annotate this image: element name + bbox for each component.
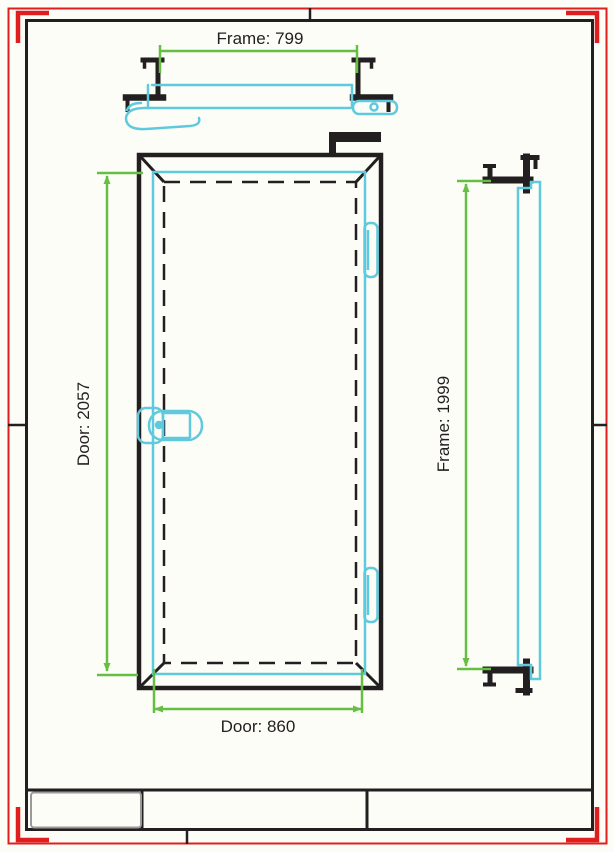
- side-section-frame-profiles: [485, 157, 537, 692]
- corner-mark-bottom-left: [18, 807, 49, 840]
- door-height-dimension-label: Door: 2057: [74, 382, 93, 466]
- side-section-dimension: [457, 181, 491, 669]
- front-elevation-view: Door: 2057 Door: 860: [74, 132, 381, 736]
- side-section-view: Frame: 1999: [434, 157, 540, 692]
- hinge-bottom: [365, 568, 378, 622]
- door-handle: [138, 408, 202, 443]
- elevation-opening-dashed-rect: [164, 182, 356, 663]
- elevation-frame-outer-rect: [139, 155, 381, 688]
- hinge-top: [365, 223, 378, 277]
- handle-spindle-dot: [156, 422, 162, 428]
- frame-height-dimension-label: Frame: 1999: [434, 376, 453, 472]
- top-section-leaf-edge-scoop: [126, 108, 199, 129]
- elevation-wall-flag-symbol: [329, 132, 381, 156]
- drawing-sheet: Frame: 799: [0, 0, 614, 852]
- side-section-sill-profile: [485, 662, 530, 692]
- corner-marks: [18, 13, 597, 840]
- top-section-view: Frame: 799: [126, 29, 397, 129]
- side-section-door-leaf: [518, 182, 540, 679]
- top-section-right-jamb-profile: [353, 60, 390, 110]
- door-drawing-canvas: Frame: 799: [0, 0, 614, 852]
- side-section-head-profile: [485, 157, 537, 190]
- title-block: [27, 790, 592, 830]
- top-section-dimension: [160, 45, 357, 73]
- corner-mark-top-left: [18, 13, 49, 43]
- elevation-frame-miter-joints: [140, 156, 380, 687]
- top-section-hinge-pin-hole: [371, 104, 378, 111]
- elevation-height-dimension: [97, 173, 143, 675]
- elevation-leaf-rect: [153, 172, 365, 674]
- door-width-dimension-label: Door: 860: [221, 717, 296, 736]
- frame-width-dimension-label: Frame: 799: [217, 29, 304, 48]
- elevation-frame: [139, 155, 381, 688]
- elevation-door-leaf: [138, 172, 378, 674]
- elevation-width-dimension: [154, 669, 362, 713]
- title-block-cell-highlight: [31, 793, 141, 828]
